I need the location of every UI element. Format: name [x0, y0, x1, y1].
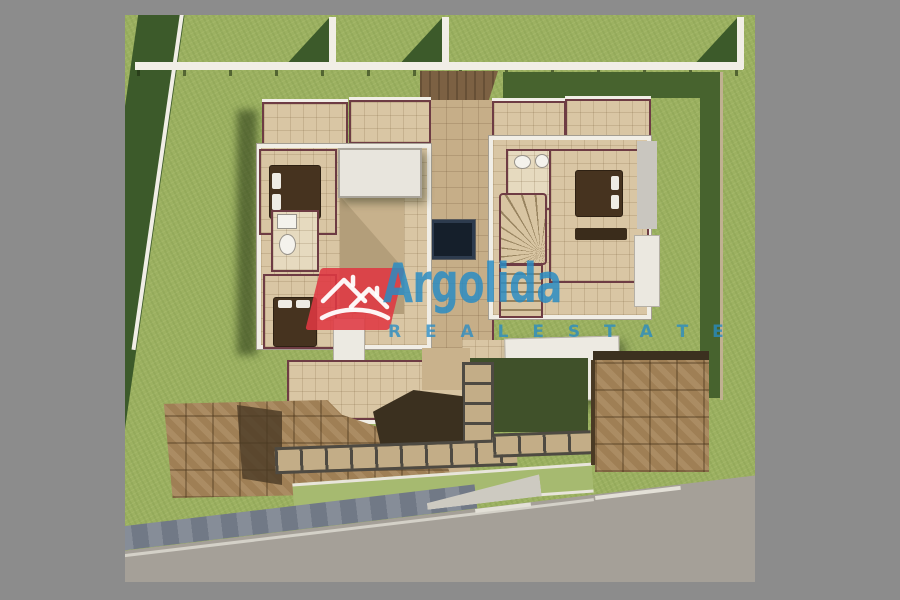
left-unit-balcony — [349, 100, 431, 144]
paver-walk-row — [493, 430, 592, 457]
left-boundary-shadow — [125, 15, 185, 441]
entry-path — [420, 71, 498, 101]
pillow — [611, 195, 619, 209]
right-boundary-wall — [737, 17, 744, 69]
argolida-watermark: Argolida R E A L E S T A T E — [310, 260, 610, 355]
wall-stub-shadow — [691, 18, 737, 68]
parking-area-right — [595, 360, 709, 472]
top-boundary-wall — [135, 62, 743, 70]
double-bed — [575, 170, 623, 217]
pillow — [611, 176, 619, 190]
left-unit-roof-canopy — [338, 148, 422, 198]
brand-tagline: R E A L E S T A T E — [388, 322, 733, 342]
sink — [535, 154, 549, 168]
sink — [277, 214, 297, 229]
bench — [575, 228, 627, 240]
east-hedge-shadow — [700, 72, 720, 398]
wall-stub-shadow — [283, 18, 329, 68]
site-plan-render: Argolida R E A L E S T A T E — [125, 15, 755, 582]
pillow — [272, 194, 281, 210]
right-unit-white-canopy-strip — [634, 235, 660, 307]
east-fence-wall — [720, 72, 723, 400]
boundary-wall-stub — [329, 17, 336, 67]
building-shadow — [237, 110, 257, 355]
north-hedge-shadow — [503, 72, 706, 98]
left-unit-balcony — [262, 102, 348, 146]
right-unit-roof-strip — [637, 141, 657, 229]
wall-stub-shadow — [396, 18, 442, 68]
paver-walk-vertical — [462, 362, 494, 446]
pillow — [272, 173, 281, 189]
pillow — [296, 300, 310, 308]
pillow — [278, 300, 292, 308]
boundary-wall-stub — [442, 17, 449, 67]
toilet — [514, 155, 531, 169]
brand-name: Argolida — [383, 252, 562, 316]
image-viewer-canvas: Argolida R E A L E S T A T E — [0, 0, 900, 600]
toilet — [279, 234, 296, 255]
